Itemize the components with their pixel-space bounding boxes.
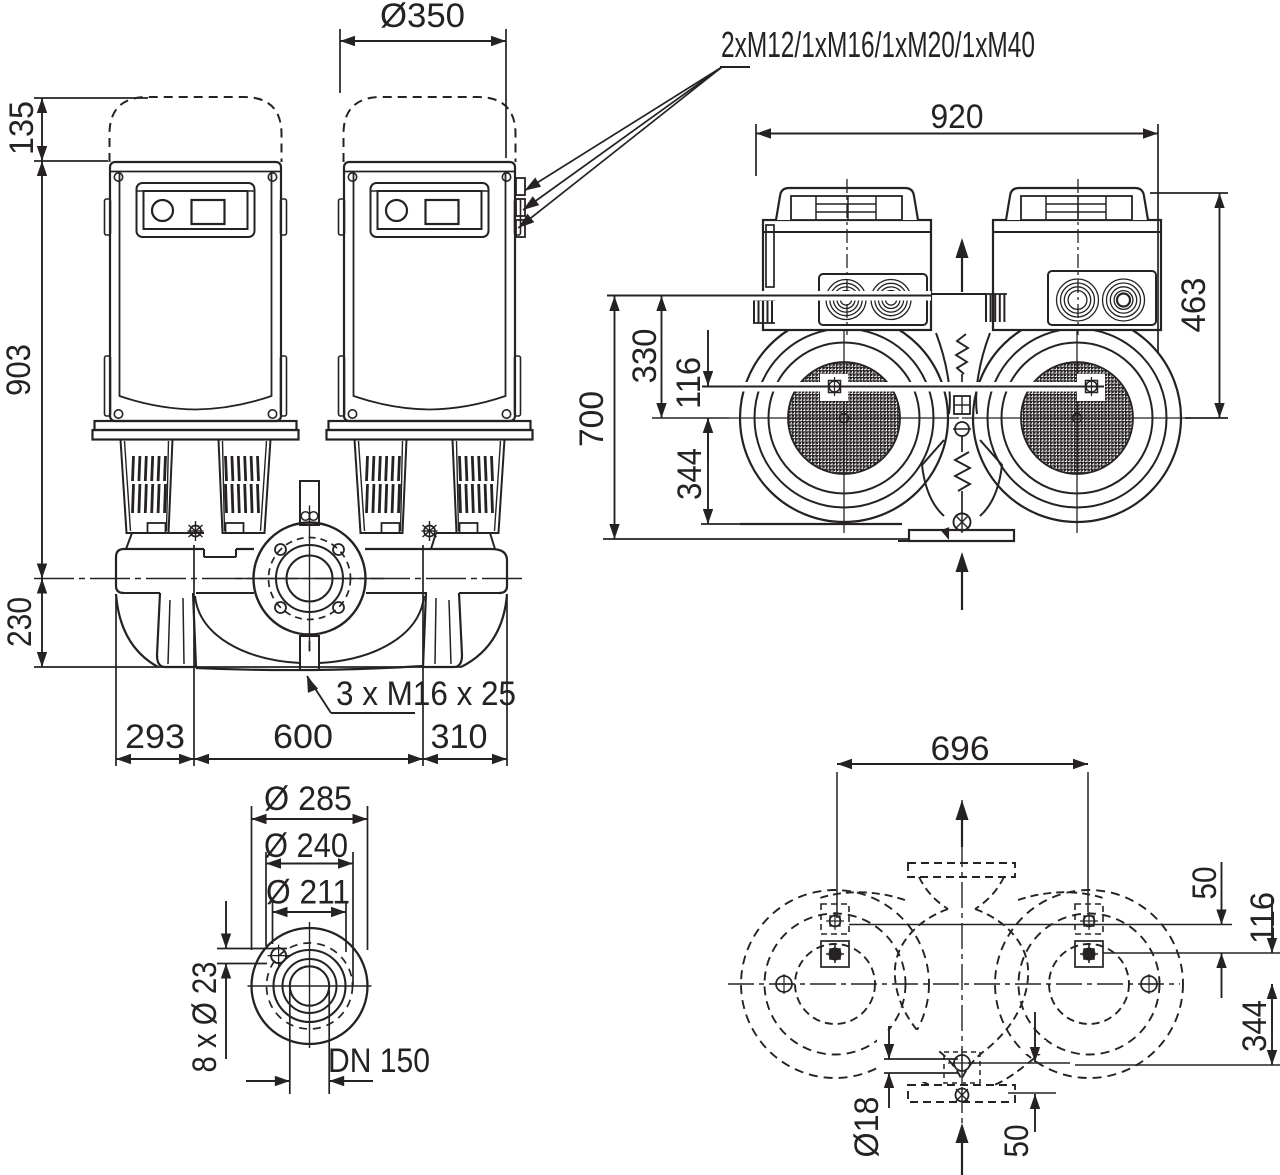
svg-text:696: 696 [931,730,990,768]
svg-text:Ø 285: Ø 285 [264,780,352,818]
svg-text:116: 116 [670,357,708,409]
svg-text:920: 920 [931,98,984,136]
svg-text:50: 50 [1186,867,1224,900]
svg-text:3 x M16 x 25: 3 x M16 x 25 [336,675,516,713]
svg-text:344: 344 [1236,1000,1274,1052]
svg-text:600: 600 [273,718,333,756]
svg-text:903: 903 [0,344,38,396]
svg-text:DN 150: DN 150 [328,1042,430,1080]
svg-text:116: 116 [1244,892,1280,944]
svg-text:50: 50 [998,1125,1036,1158]
svg-text:344: 344 [671,448,709,500]
svg-text:2xM12/1xM16/1xM20/1xM40: 2xM12/1xM16/1xM20/1xM40 [721,24,1035,65]
svg-text:Ø 240: Ø 240 [264,827,348,865]
svg-text:463: 463 [1175,278,1213,333]
svg-text:293: 293 [125,718,185,756]
svg-text:330: 330 [626,329,664,384]
svg-text:Ø350: Ø350 [380,0,465,35]
svg-text:Ø 211: Ø 211 [266,874,350,912]
svg-text:135: 135 [3,101,41,155]
svg-text:700: 700 [573,391,611,447]
svg-text:230: 230 [1,597,39,647]
svg-text:Ø18: Ø18 [848,1097,886,1158]
svg-text:310: 310 [431,718,488,756]
svg-text:8 x Ø 23: 8 x Ø 23 [186,962,224,1073]
